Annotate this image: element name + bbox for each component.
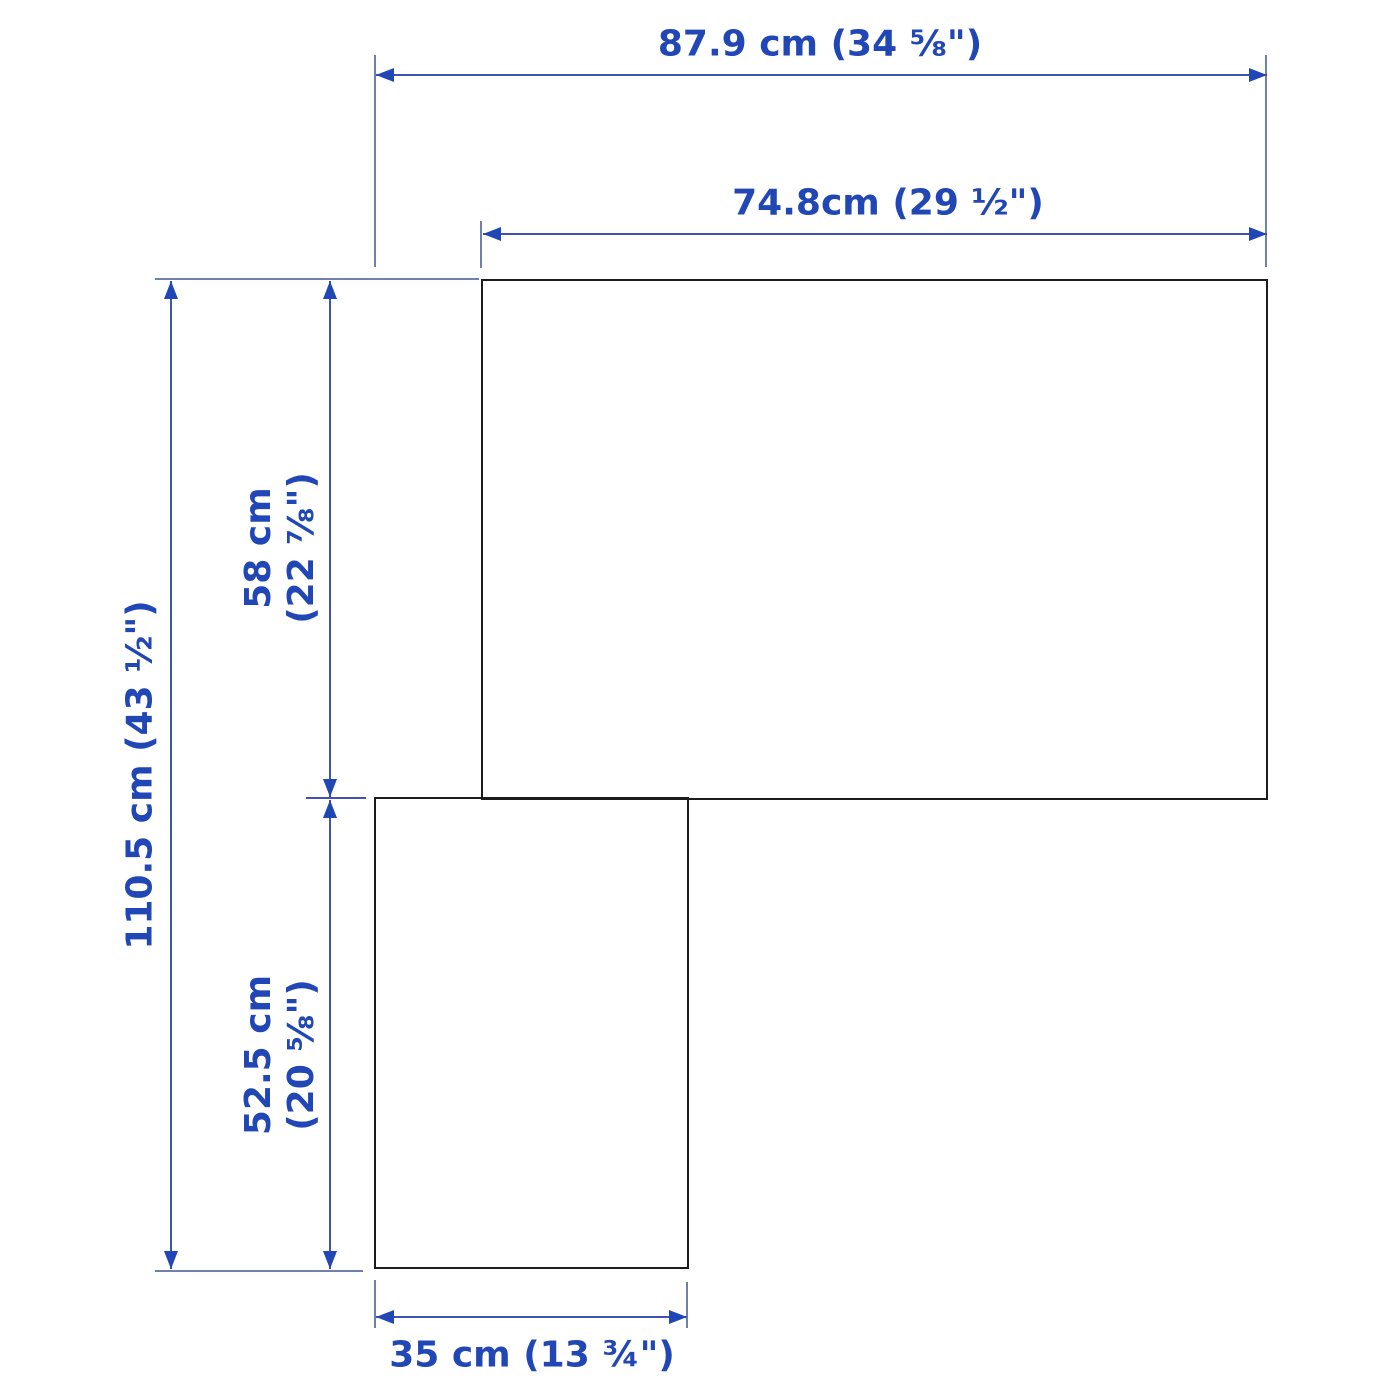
arrowhead-up-icon (323, 281, 337, 299)
arrowhead-right-icon (1249, 227, 1267, 241)
arrowhead-down-icon (323, 1251, 337, 1269)
lower-panel-width-label: 35 cm (13 ¾") (389, 1333, 675, 1376)
lower-panel-depth-cm-text: 52.5 cm (237, 975, 280, 1135)
extension-line-top-shared (155, 278, 479, 280)
junction-tick-line (306, 797, 366, 799)
arrowhead-right-icon (669, 1310, 687, 1324)
upper-panel-depth-in-text: (22 ⅞") (280, 472, 323, 624)
lower-panel-depth-in-text: (20 ⅝") (280, 975, 323, 1135)
lower-panel-outline (374, 797, 689, 1269)
extension-line-upper-panel-left (480, 221, 482, 268)
overall-depth-dimension-line (170, 281, 172, 1269)
furniture-dimension-diagram: 87.9 cm (34 ⅝") 74.8cm (29 ½") 110.5 cm … (0, 0, 1400, 1400)
overall-depth-label: 110.5 cm (43 ½") (118, 600, 161, 949)
upper-panel-width-dimension-line (483, 233, 1267, 235)
arrowhead-down-icon (164, 1251, 178, 1269)
arrowhead-left-icon (483, 227, 501, 241)
upper-panel-depth-cm-text: 58 cm (237, 472, 280, 624)
arrowhead-left-icon (376, 1310, 394, 1324)
upper-panel-depth-label: 58 cm (22 ⅞") (237, 472, 323, 624)
lower-panel-depth-label: 52.5 cm (20 ⅝") (237, 975, 323, 1135)
overall-width-label: 87.9 cm (34 ⅝") (658, 22, 982, 65)
upper-panel-depth-dimension-line (329, 281, 331, 797)
arrowhead-up-icon (323, 800, 337, 818)
overall-width-dimension-line (376, 74, 1267, 76)
extension-line-overall-width-left (374, 55, 376, 267)
lower-panel-depth-dimension-line (329, 800, 331, 1269)
arrowhead-right-icon (1249, 68, 1267, 82)
lower-panel-width-dimension-line (376, 1316, 687, 1318)
extension-line-bottom-left (155, 1270, 363, 1272)
upper-panel-outline (481, 279, 1268, 800)
arrowhead-left-icon (376, 68, 394, 82)
upper-panel-width-label: 74.8cm (29 ½") (732, 181, 1044, 224)
arrowhead-down-icon (323, 779, 337, 797)
arrowhead-up-icon (164, 281, 178, 299)
